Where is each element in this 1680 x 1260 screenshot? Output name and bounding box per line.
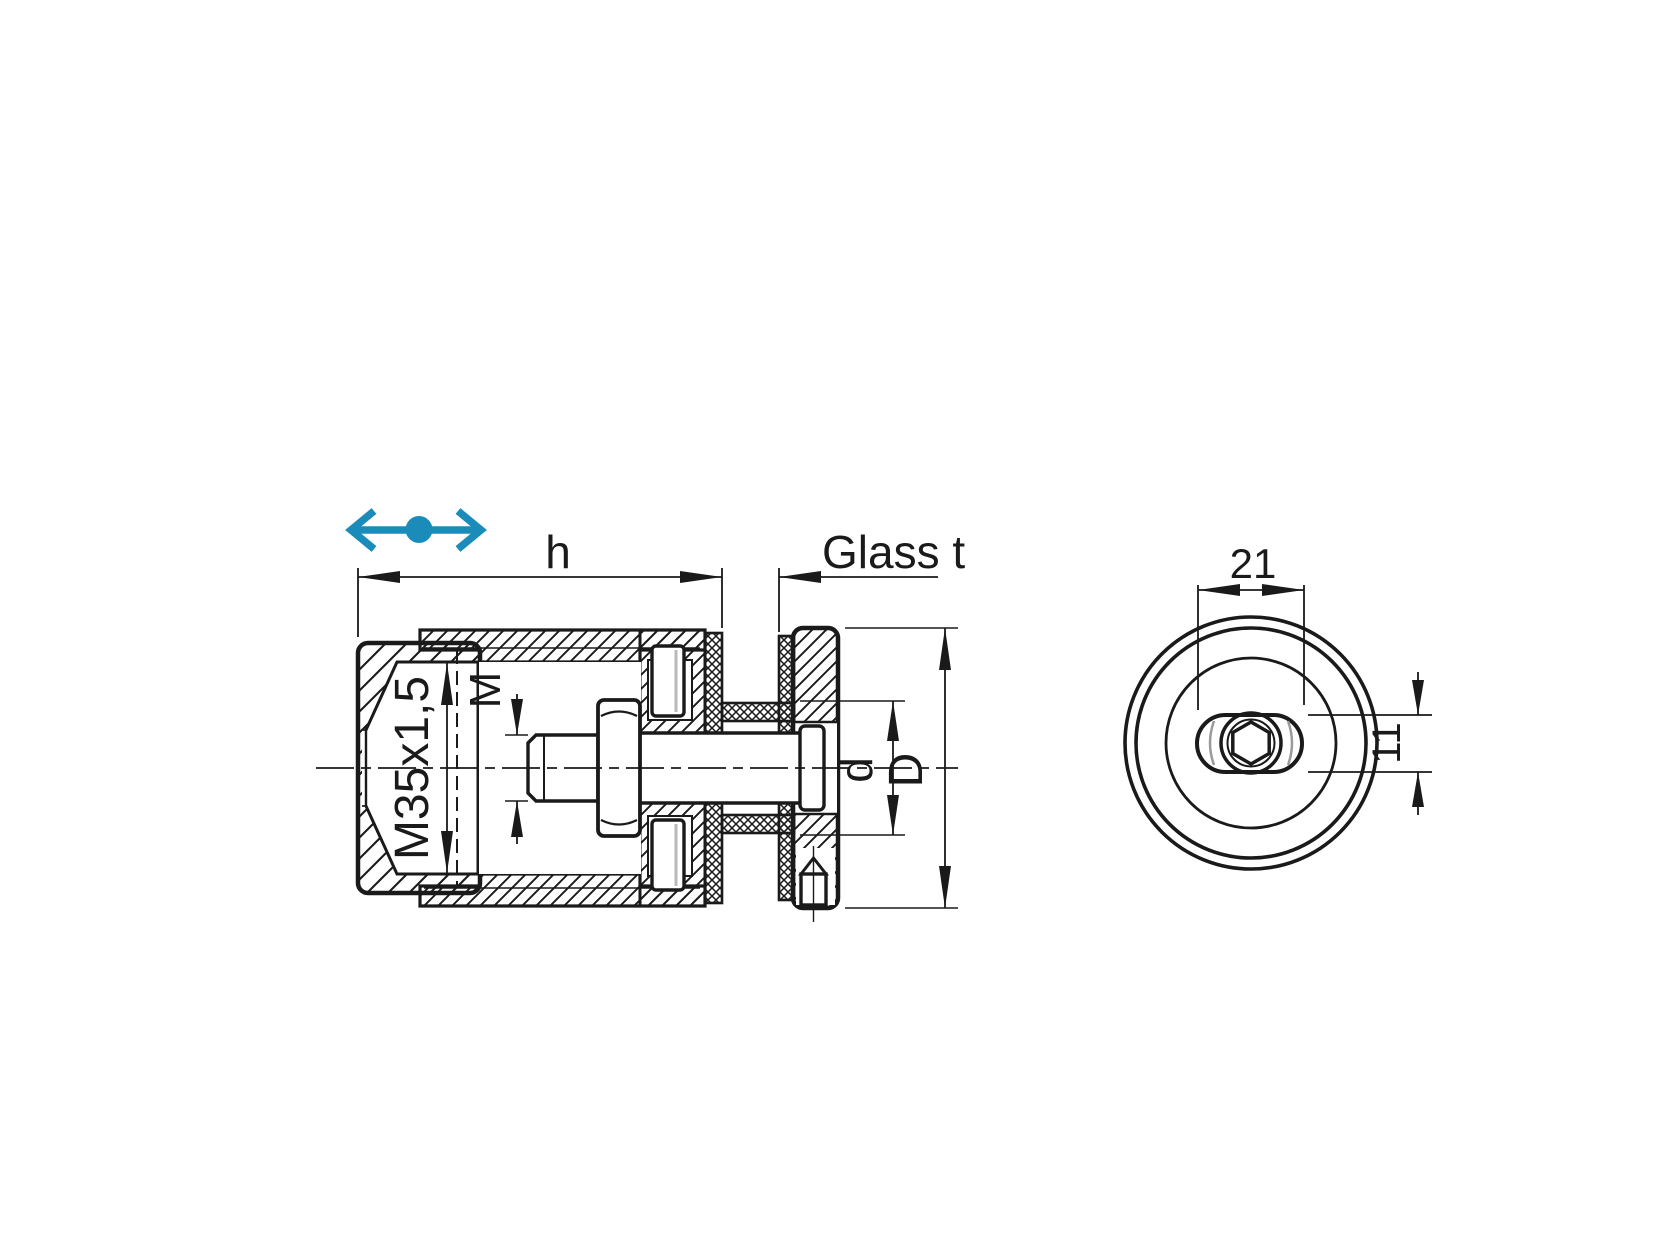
- dim-d-label: d: [830, 757, 882, 783]
- dim-h-label: h: [545, 526, 571, 578]
- horizontal-move-arrow-icon: [351, 511, 481, 549]
- body-thread-label: M35x1,5: [386, 676, 439, 860]
- move-icon-center-dot: [406, 516, 433, 543]
- grommet-top: [722, 703, 794, 721]
- bushing-bottom: [652, 820, 684, 890]
- section-view: h Glass t M35x1,5 M d D: [316, 526, 965, 922]
- bolt-thread-label: M: [461, 672, 510, 709]
- dim-glass-t-label: Glass t: [822, 526, 965, 578]
- glass-adapter-drawing: h Glass t M35x1,5 M d D: [0, 0, 1680, 1260]
- front-slot: [1197, 713, 1302, 773]
- bushing-top: [652, 646, 684, 716]
- grommet-bottom: [722, 815, 794, 833]
- front-view-circles: [1125, 617, 1377, 869]
- dim-21-label: 21: [1230, 540, 1277, 587]
- dim-11-label: 11: [1365, 722, 1409, 764]
- front-view: 21 11: [1125, 540, 1432, 869]
- dim-D-label: D: [880, 753, 933, 788]
- drawing-canvas: h Glass t M35x1,5 M d D: [0, 0, 1680, 1260]
- hex-socket: [1233, 722, 1269, 764]
